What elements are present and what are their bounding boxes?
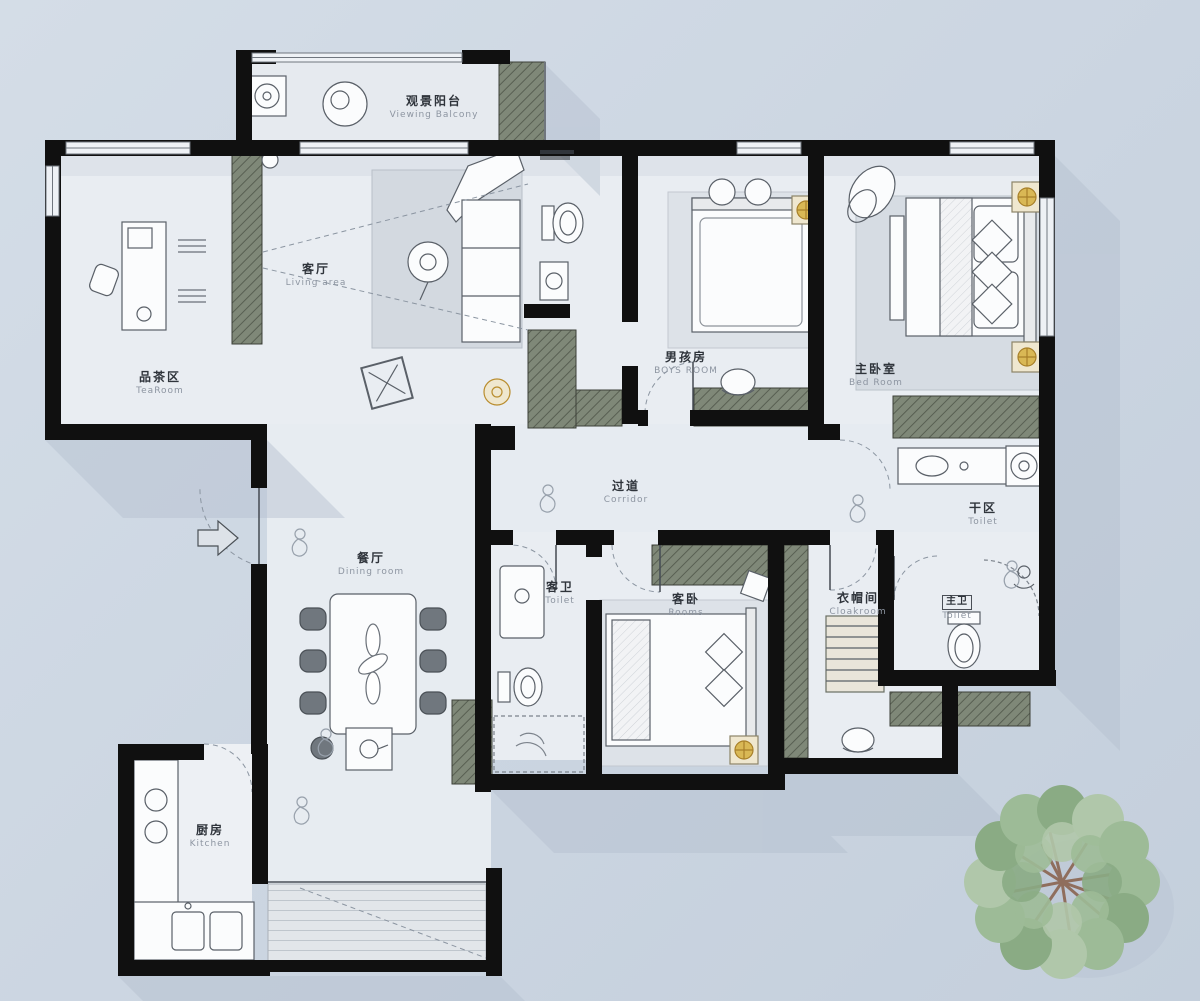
window-living-slider xyxy=(300,142,468,154)
wall-cloak-right-lower xyxy=(942,670,958,774)
wall-post-corridor xyxy=(491,426,515,450)
master-nightlight-bottom-icon xyxy=(1012,342,1042,372)
dining-table xyxy=(330,594,416,734)
washing-machine-icon xyxy=(248,76,286,116)
wall-balcony-post-tr xyxy=(462,50,510,64)
wall-balcony-left xyxy=(236,50,252,154)
floor-plan-canvas: 观景阳台Viewing Balcony 客厅Living area 品茶区Tea… xyxy=(0,0,1200,1001)
cloak-side-cabinet xyxy=(784,545,808,758)
guest-nightlight-icon xyxy=(730,736,758,764)
master-nightlight-top-icon xyxy=(1012,182,1042,212)
corridor-cabinet xyxy=(576,390,622,426)
guest-bed xyxy=(606,608,756,752)
wall-guest-divider-a xyxy=(586,545,602,557)
wall-topbath-right-lower xyxy=(622,366,638,424)
wall-corridor-west xyxy=(475,424,491,792)
wall-guest-bottom xyxy=(475,774,785,790)
guest-toilet-icon xyxy=(498,668,542,706)
wall-kitchen-left xyxy=(118,744,134,976)
wall-boys-bottom-a xyxy=(638,410,648,426)
wall-masterbath-bottom xyxy=(878,670,1056,686)
wall-cloak-bottom xyxy=(768,758,958,774)
tv-wall-cabinet xyxy=(232,150,262,344)
wall-masterbath-left xyxy=(878,530,894,680)
boys-chair-icon xyxy=(721,369,755,395)
top-bath-toilet-icon xyxy=(542,203,583,243)
wall-corridor-bottom-a xyxy=(491,530,513,545)
gold-side-table-icon xyxy=(484,379,510,405)
shadow-guest-wall xyxy=(491,790,848,853)
wall-master-post xyxy=(824,424,840,440)
wall-boys-bottom-b xyxy=(690,410,824,426)
window-tea xyxy=(66,142,190,154)
wall-topbath-bottom xyxy=(524,304,570,318)
wall-entry-lower xyxy=(251,564,267,754)
wall-kitchen-right xyxy=(252,744,268,884)
wall-corridor-bottom-c xyxy=(658,530,830,545)
window-master xyxy=(950,142,1034,154)
cloak-shoe-cabinet xyxy=(890,692,1030,726)
wall-entry-upper xyxy=(251,424,267,488)
window-boys xyxy=(737,142,801,154)
sofa-body xyxy=(462,200,520,342)
wall-boys-master-divider xyxy=(808,140,824,440)
shadow-bottom-wall xyxy=(118,976,525,1001)
tea-cart xyxy=(346,728,392,770)
wall-kitchen-bottom xyxy=(118,960,270,976)
top-bath-sink-icon xyxy=(540,262,568,300)
coffee-table-icon xyxy=(408,242,448,282)
deck-floor xyxy=(268,884,486,962)
wall-corridor-bottom-b xyxy=(556,530,614,545)
wall-cloak-guest-divider xyxy=(768,545,784,774)
entry-arrow-icon xyxy=(198,521,238,555)
wall-deck-right xyxy=(486,868,502,976)
wall-topbath-right-upper xyxy=(622,140,638,322)
master-wardrobe xyxy=(893,396,1039,438)
floor-plan-drawing xyxy=(0,0,1200,1001)
hall-storage-cabinet xyxy=(528,330,576,428)
cloak-shelf-unit xyxy=(826,616,884,692)
wall-deck-bottom xyxy=(268,960,486,972)
wall-deck-post-left xyxy=(252,868,268,884)
window-right-wall xyxy=(1040,198,1054,336)
master-bed xyxy=(906,192,1036,342)
balcony-cabinet xyxy=(499,62,545,148)
cloak-chair-icon xyxy=(842,728,874,752)
vanity-counter xyxy=(898,446,1042,486)
guest-vanity-icon xyxy=(500,566,544,638)
wall-tea-bottom xyxy=(45,424,267,440)
master-bench xyxy=(890,216,904,320)
master-toilet-icon xyxy=(948,612,980,668)
wall-guest-divider-b xyxy=(586,600,602,790)
shadow-right-wall xyxy=(1055,156,1120,751)
window-left-wall xyxy=(46,166,59,216)
window-balcony-top xyxy=(252,53,462,62)
balcony-basin-icon xyxy=(323,82,367,126)
